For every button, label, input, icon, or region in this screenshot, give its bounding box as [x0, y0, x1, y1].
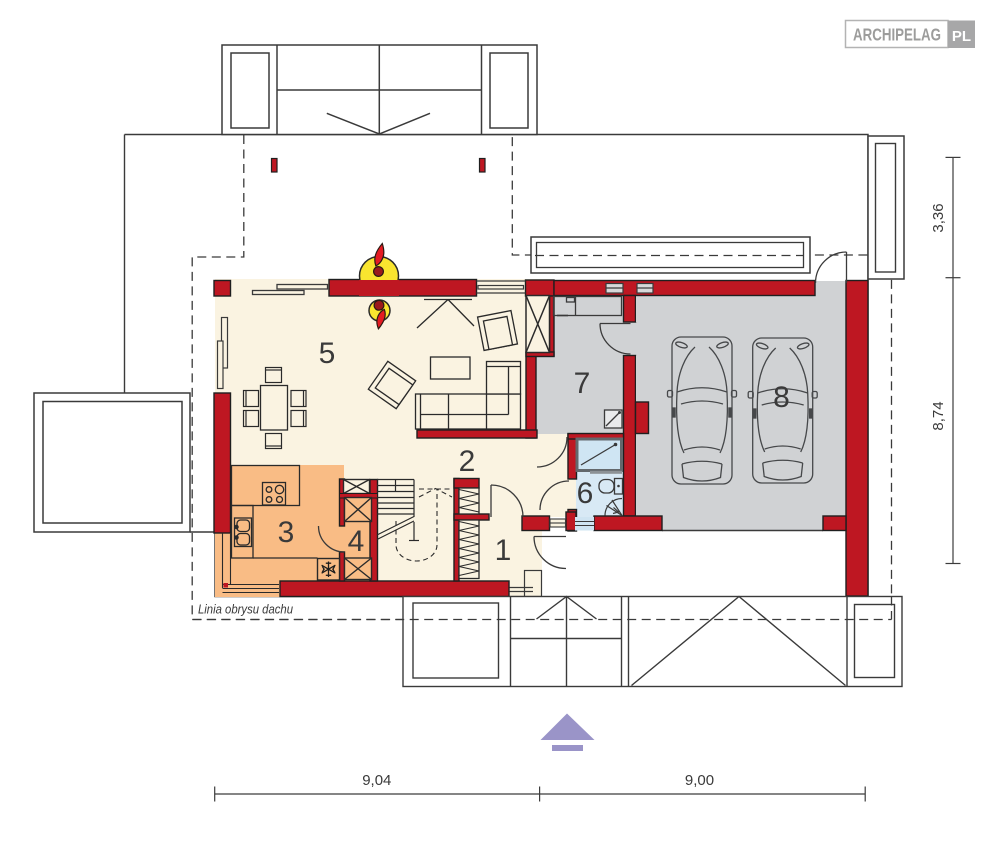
svg-text:4: 4	[348, 525, 365, 558]
svg-text:PL: PL	[952, 28, 971, 45]
svg-text:3,36: 3,36	[930, 203, 947, 232]
svg-text:ARCHIPELAG: ARCHIPELAG	[853, 25, 941, 45]
svg-text:5: 5	[319, 337, 336, 370]
svg-text:Linia obrysu dachu: Linia obrysu dachu	[198, 602, 293, 617]
svg-text:2: 2	[459, 445, 476, 478]
svg-text:7: 7	[574, 367, 591, 400]
svg-text:9,04: 9,04	[362, 772, 391, 789]
svg-text:8,74: 8,74	[930, 401, 947, 430]
svg-text:9,00: 9,00	[685, 772, 714, 789]
svg-text:6: 6	[577, 477, 594, 510]
svg-text:1: 1	[495, 534, 512, 567]
svg-text:3: 3	[278, 516, 295, 549]
svg-text:8: 8	[773, 381, 790, 414]
